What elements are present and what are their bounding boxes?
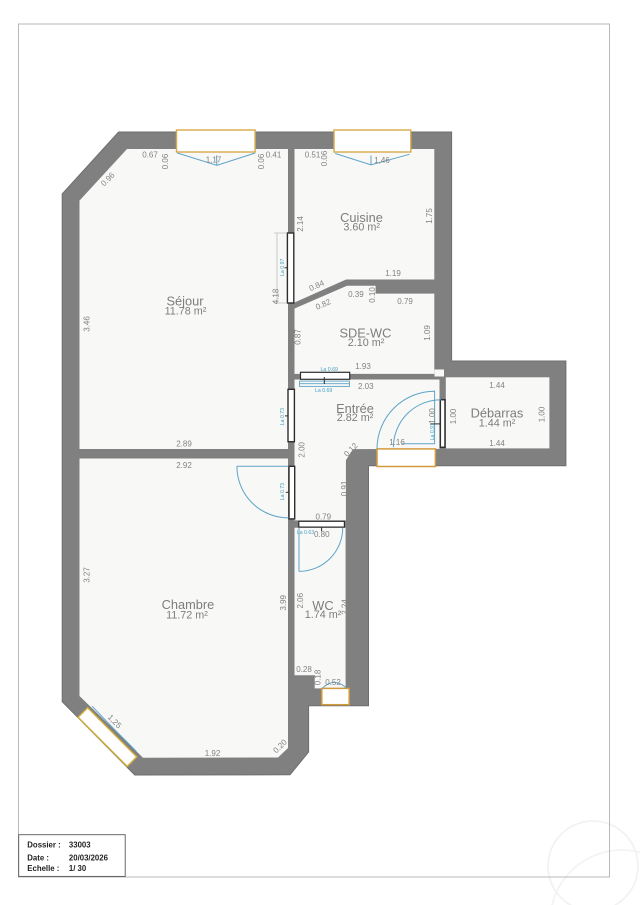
svg-text:1.44 m²: 1.44 m² (479, 418, 516, 430)
svg-text:0.51: 0.51 (305, 151, 321, 160)
svg-text:0.06: 0.06 (161, 153, 170, 169)
svg-text:Echelle :: Echelle : (27, 864, 59, 873)
svg-text:La 0.73: La 0.73 (280, 408, 286, 425)
svg-text:0.06: 0.06 (320, 150, 329, 166)
svg-text:1.09: 1.09 (423, 325, 432, 341)
svg-text:33003: 33003 (69, 840, 91, 849)
svg-text:2.03: 2.03 (358, 382, 374, 391)
svg-text:1.92: 1.92 (205, 749, 221, 758)
svg-text:2.00: 2.00 (297, 441, 306, 457)
svg-text:0.39: 0.39 (348, 290, 364, 299)
svg-text:La 0.69: La 0.69 (321, 367, 338, 373)
svg-text:1.00: 1.00 (428, 408, 437, 424)
svg-text:4.18: 4.18 (271, 288, 280, 304)
svg-text:Dossier :: Dossier : (27, 840, 60, 849)
svg-text:0.87: 0.87 (293, 329, 302, 345)
svg-text:3.27: 3.27 (82, 567, 91, 583)
svg-text:2.89: 2.89 (176, 440, 192, 449)
svg-text:2.92: 2.92 (176, 461, 192, 470)
svg-text:11.78 m²: 11.78 m² (165, 306, 207, 318)
svg-text:1.44: 1.44 (489, 381, 505, 390)
svg-text:1.00: 1.00 (449, 408, 458, 424)
svg-text:2.24: 2.24 (341, 599, 350, 615)
svg-text:0.67: 0.67 (142, 151, 158, 160)
svg-text:2.14: 2.14 (296, 216, 305, 232)
svg-text:1,46: 1,46 (374, 156, 390, 165)
svg-text:La 0.73: La 0.73 (280, 483, 286, 500)
svg-text:2.82 m²: 2.82 m² (337, 412, 374, 424)
svg-text:1.75: 1.75 (425, 208, 434, 224)
svg-text:0.80: 0.80 (314, 530, 330, 539)
svg-text:La 0.63: La 0.63 (297, 530, 314, 536)
svg-text:0.28: 0.28 (296, 665, 312, 674)
svg-text:Date :: Date : (27, 854, 49, 863)
svg-text:3.60 m²: 3.60 m² (343, 222, 380, 234)
svg-text:1.93: 1.93 (355, 362, 371, 371)
svg-text:3.46: 3.46 (82, 316, 91, 332)
svg-text:0.91: 0.91 (340, 480, 349, 496)
svg-text:0.79: 0.79 (397, 297, 413, 306)
svg-text:1,17: 1,17 (206, 156, 222, 165)
svg-text:La 0.97: La 0.97 (280, 259, 286, 276)
svg-text:0.18: 0.18 (314, 669, 323, 685)
svg-text:1.19: 1.19 (385, 269, 401, 278)
svg-text:2.06: 2.06 (296, 592, 305, 608)
svg-text:11.72 m²: 11.72 m² (166, 609, 208, 621)
svg-text:0.52: 0.52 (325, 678, 341, 687)
svg-text:1.00: 1.00 (538, 406, 547, 422)
svg-text:0.41: 0.41 (266, 151, 282, 160)
svg-text:3.99: 3.99 (279, 594, 288, 610)
svg-text:0.10: 0.10 (368, 287, 377, 303)
svg-text:0.79: 0.79 (316, 512, 332, 521)
svg-text:1/ 30: 1/ 30 (69, 864, 87, 873)
svg-text:0.06: 0.06 (257, 153, 266, 169)
svg-text:La 0.69: La 0.69 (315, 388, 332, 394)
svg-text:1.74 m²: 1.74 m² (305, 609, 342, 621)
svg-text:La 0.91: La 0.91 (430, 423, 436, 440)
svg-text:2.10 m²: 2.10 m² (348, 337, 385, 349)
svg-text:1.16: 1.16 (389, 438, 405, 447)
svg-text:1.44: 1.44 (489, 439, 505, 448)
svg-text:20/03/2026: 20/03/2026 (69, 854, 109, 863)
